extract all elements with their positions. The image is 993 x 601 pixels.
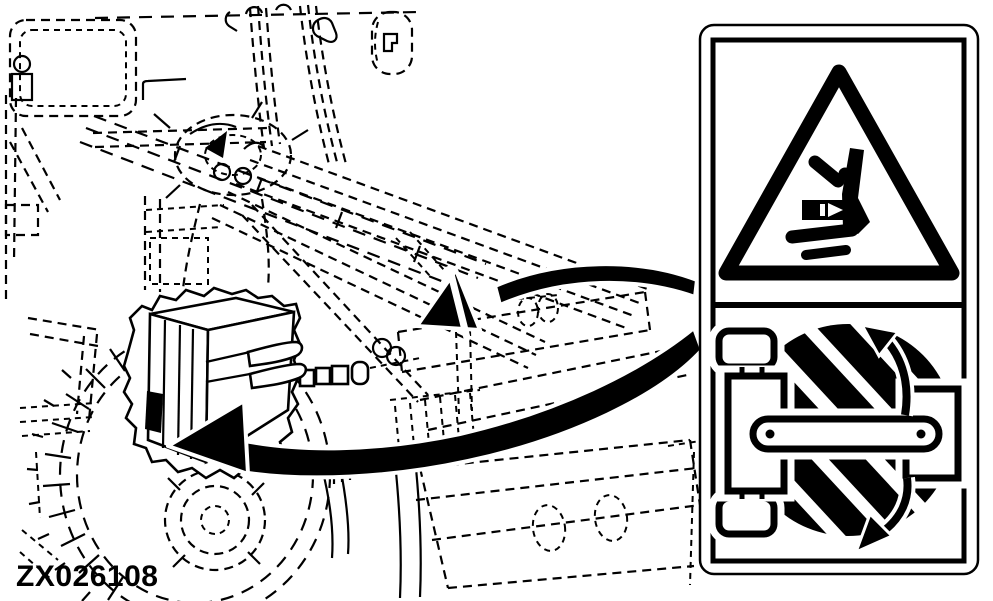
machine-illustration bbox=[6, 5, 700, 601]
figure-code: ZX026108 bbox=[16, 560, 158, 594]
manual-figure: ZX026108 bbox=[0, 0, 993, 601]
figure-artwork bbox=[0, 0, 993, 601]
decal-location-marker bbox=[145, 391, 163, 433]
safety-decal bbox=[687, 25, 993, 593]
